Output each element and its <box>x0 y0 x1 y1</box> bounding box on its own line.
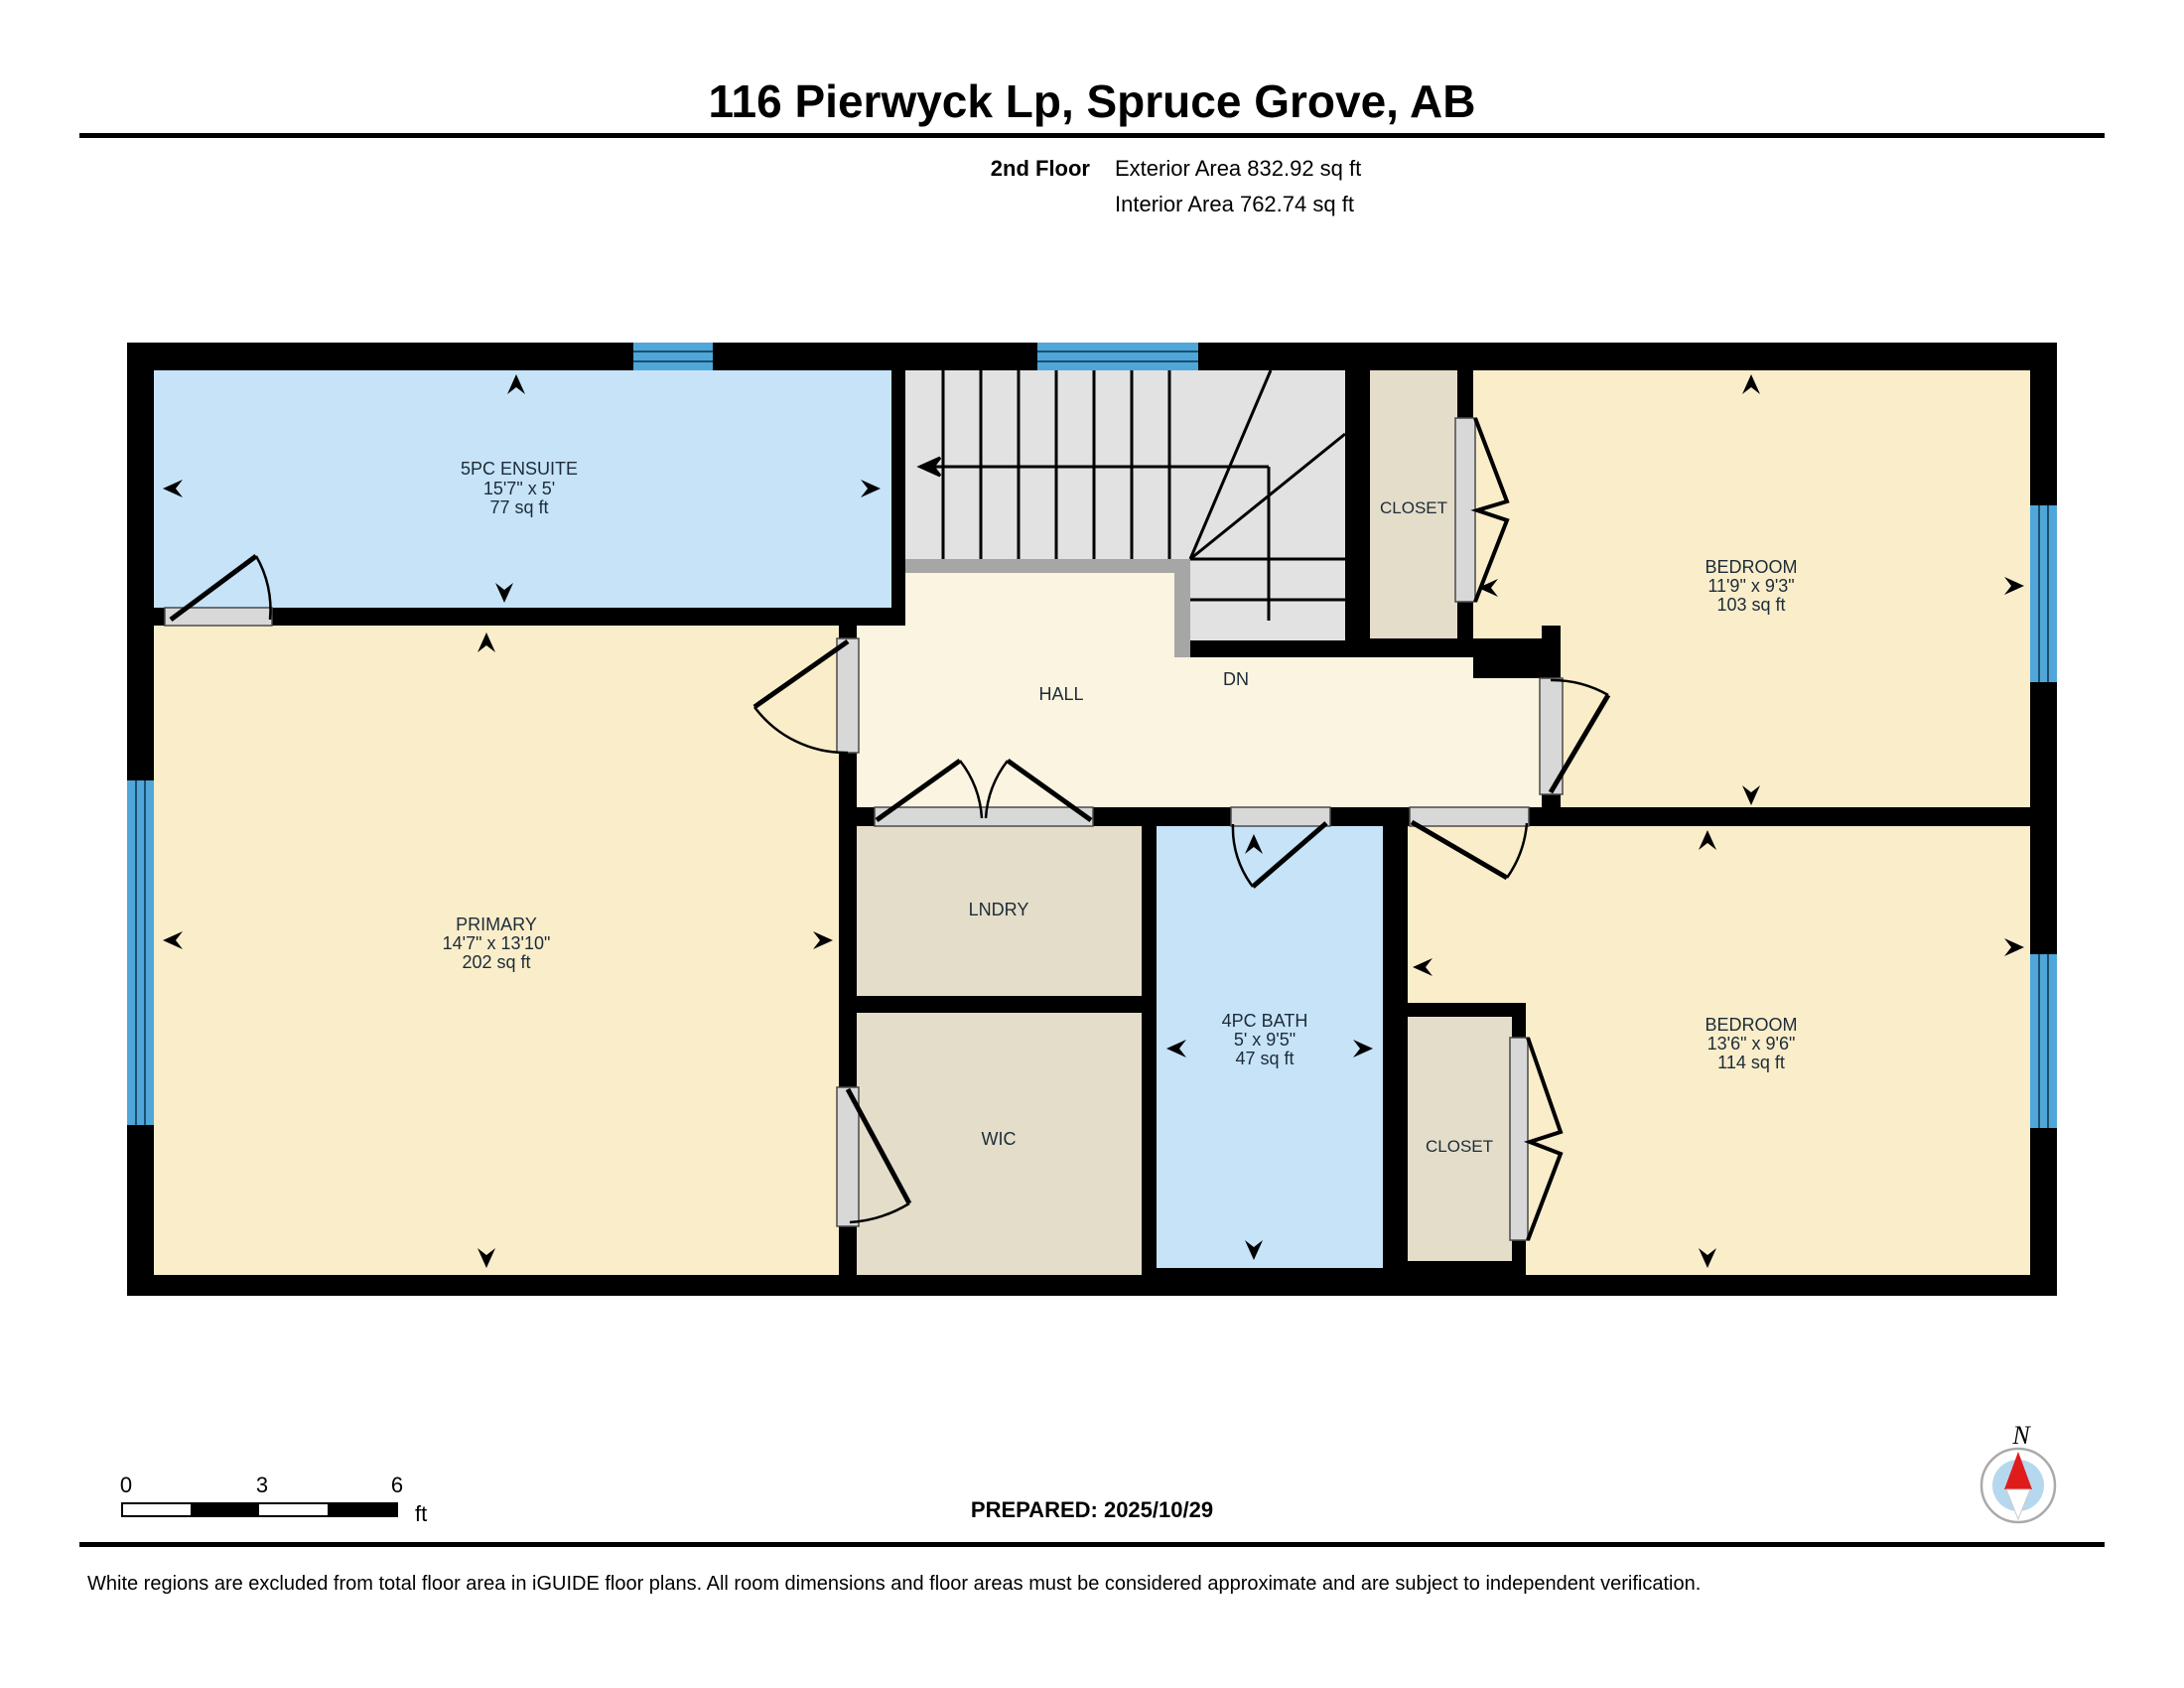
header: 116 Pierwyck Lp, Spruce Grove, AB 2nd Fl… <box>79 75 2105 216</box>
primary-dims: 14'7" x 13'10" <box>443 933 551 953</box>
scale-bar-segment-1 <box>191 1503 259 1516</box>
ensuite-dims: 15'7" x 5' <box>483 479 555 498</box>
bedroom-bottom-area: 114 sq ft <box>1717 1053 1785 1072</box>
stairs-dn-label: DN <box>1223 669 1249 689</box>
ensuite-area: 77 sq ft <box>489 497 548 517</box>
bath-name: 4PC BATH <box>1222 1011 1308 1031</box>
ensuite-name: 5PC ENSUITE <box>461 459 578 479</box>
hall-fill-strip <box>905 573 1174 626</box>
bedroom-bottom-door-sill <box>1410 807 1529 826</box>
window-top-ensuite <box>633 343 713 370</box>
scale-bar-segment-2 <box>328 1503 396 1516</box>
window-right-bedroom-bottom <box>2030 954 2057 1128</box>
footer: White regions are excluded from total fl… <box>79 1542 2105 1595</box>
interior-area-label: Interior Area 762.74 sq ft <box>1115 192 1354 216</box>
exterior-area-label: Exterior Area 832.92 sq ft <box>1115 156 1361 181</box>
closet-bottom-name: CLOSET <box>1426 1137 1493 1156</box>
laundry-door-sill <box>875 807 1093 826</box>
bath-area: 47 sq ft <box>1235 1049 1294 1068</box>
stairwell-upper-fill <box>905 370 1345 573</box>
footer-rule <box>79 1542 2105 1547</box>
stair-rail-strip-v <box>1174 559 1190 657</box>
hall-name: HALL <box>1038 684 1083 704</box>
floor-plan-page: 116 Pierwyck Lp, Spruce Grove, AB 2nd Fl… <box>0 0 2184 1688</box>
disclaimer-text: White regions are excluded from total fl… <box>87 1573 1701 1595</box>
window-left-primary <box>127 780 154 1125</box>
window-right-bedroom-top <box>2030 505 2057 682</box>
prepared-date-label: PREPARED: 2025/10/29 <box>971 1497 1213 1522</box>
page-title: 116 Pierwyck Lp, Spruce Grove, AB <box>709 75 1476 127</box>
primary-door-sill <box>837 638 859 753</box>
primary-name: PRIMARY <box>456 914 537 934</box>
bath-dims: 5' x 9'5" <box>1234 1030 1296 1050</box>
laundry-name: LNDRY <box>969 900 1029 919</box>
bath-door-sill <box>1231 807 1330 826</box>
bedroom-bottom-dims: 13'6" x 9'6" <box>1707 1034 1796 1054</box>
bedroom-top-area: 103 sq ft <box>1716 595 1785 615</box>
bedroom-top-dims: 11'9" x 9'3" <box>1707 576 1794 596</box>
primary-area: 202 sq ft <box>462 952 530 972</box>
bedroom-bottom-name: BEDROOM <box>1705 1015 1797 1035</box>
window-top-stairs <box>1037 343 1198 370</box>
scale-bar: 0 3 6 ft <box>120 1473 427 1526</box>
compass-icon: N <box>1981 1421 2055 1522</box>
compass-north-label: N <box>2011 1421 2031 1450</box>
closet-top-name: CLOSET <box>1380 498 1447 517</box>
scale-tick-6: 6 <box>391 1473 403 1497</box>
header-rule <box>79 133 2105 138</box>
bedroom-top-name: BEDROOM <box>1705 557 1797 577</box>
stair-rail-strip-h <box>905 559 1174 573</box>
floor-label: 2nd Floor <box>991 156 1091 181</box>
hall-fill-left <box>857 626 1174 807</box>
scale-tick-3: 3 <box>256 1473 268 1497</box>
closet-bottom-door-sill <box>1510 1038 1528 1240</box>
scale-unit-label: ft <box>415 1501 427 1526</box>
scale-tick-0: 0 <box>120 1473 132 1497</box>
floor-plan-svg: 116 Pierwyck Lp, Spruce Grove, AB 2nd Fl… <box>0 0 2184 1688</box>
wic-name: WIC <box>982 1129 1017 1149</box>
